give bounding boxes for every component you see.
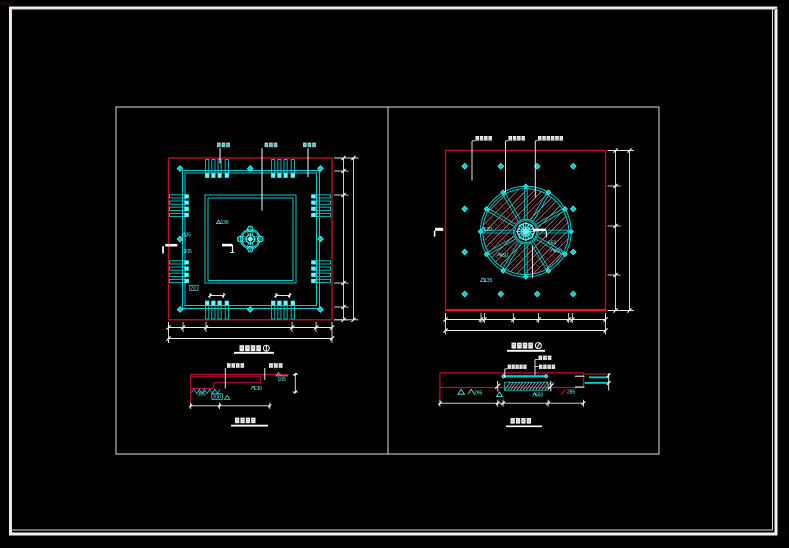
svg-text:295: 295 — [474, 390, 483, 396]
svg-text:136: 136 — [221, 220, 230, 226]
svg-text:35: 35 — [186, 233, 192, 239]
svg-text:305: 305 — [184, 249, 193, 255]
svg-text:200: 200 — [213, 395, 222, 401]
svg-text:105: 105 — [278, 377, 287, 383]
svg-text:305: 305 — [198, 391, 207, 397]
svg-text:450: 450 — [554, 249, 563, 255]
svg-text:650: 650 — [548, 241, 557, 247]
svg-text:285: 285 — [567, 390, 576, 396]
